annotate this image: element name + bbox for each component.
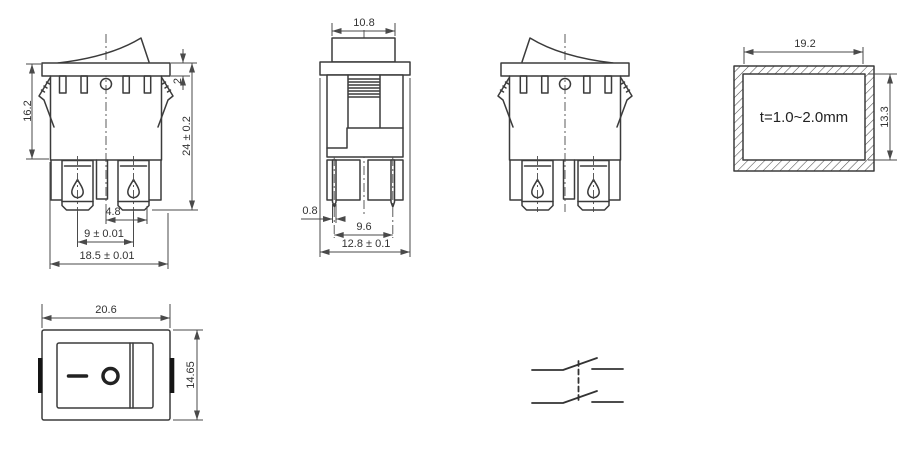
- view-front: 16.2 2 24 ± 0.2 4.8 9 ± 0.01 18.5 ± 0.01: [22, 34, 198, 269]
- terminal-block-right: [368, 160, 403, 200]
- view-side: 10.8 0.8 9.6 12.8 ± 0.1: [301, 17, 410, 257]
- view-front-mirrored: [498, 34, 632, 212]
- dim-body-depth: 12.8 ± 0.1: [342, 238, 391, 250]
- view-circuit-symbol: [532, 358, 623, 403]
- dim-face-width: 20.6: [95, 304, 116, 316]
- dim-cutout-height: 13.3: [879, 106, 891, 127]
- pole-1: [532, 358, 623, 370]
- view-panel-cutout: t=1.0~2.0mm 19.2 13.3: [734, 38, 897, 171]
- spring-ribs: [349, 79, 379, 97]
- rocker-side: [332, 38, 395, 62]
- dim-upper-height: 16.2: [22, 100, 34, 121]
- dim-rocker-width: 10.8: [353, 17, 374, 29]
- dim-face-height: 14.65: [185, 361, 197, 389]
- panel-thickness-note: t=1.0~2.0mm: [760, 109, 848, 126]
- view-top-face: 20.6 14.65: [38, 304, 203, 420]
- dim-pin-thickness: 0.8: [302, 205, 317, 217]
- dim-pin-pitch: 9.6: [356, 221, 371, 233]
- bezel-flange-side: [320, 62, 410, 75]
- dim-bezel-thickness: 2: [172, 78, 184, 84]
- dim-cutout-width: 19.2: [794, 38, 815, 50]
- mount-tab-right: [170, 358, 175, 393]
- dim-total-height: 24 ± 0.2: [181, 116, 193, 156]
- dim-terminal-pitch: 9 ± 0.01: [84, 228, 124, 240]
- mount-tab-left: [38, 358, 43, 393]
- drawing-canvas: 16.2 2 24 ± 0.2 4.8 9 ± 0.01 18.5 ± 0.01: [0, 0, 910, 460]
- rocker-switch-technical-drawing: 16.2 2 24 ± 0.2 4.8 9 ± 0.01 18.5 ± 0.01: [0, 0, 910, 460]
- dim-body-width: 18.5 ± 0.01: [80, 250, 135, 262]
- pole-2: [532, 391, 623, 403]
- dim-terminal-offset: 4.8: [105, 206, 120, 218]
